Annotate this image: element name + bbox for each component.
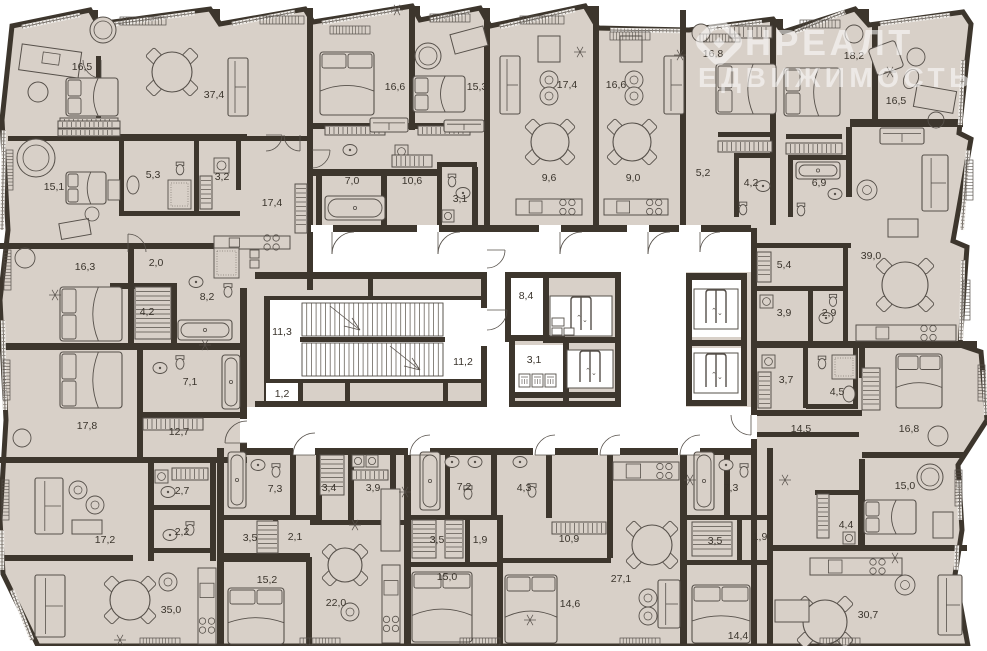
svg-text:5,4: 5,4 [777, 259, 792, 271]
svg-text:⌄: ⌄ [717, 374, 723, 381]
svg-text:4,3: 4,3 [517, 482, 532, 494]
svg-text:4,2: 4,2 [140, 306, 155, 318]
svg-text:39,0: 39,0 [861, 250, 882, 262]
svg-text:8,4: 8,4 [519, 290, 534, 302]
svg-text:7,2: 7,2 [457, 481, 472, 493]
svg-text:1,9: 1,9 [473, 534, 488, 546]
svg-text:9,6: 9,6 [542, 172, 557, 184]
svg-text:14,5: 14,5 [791, 423, 812, 435]
svg-text:2,9: 2,9 [822, 307, 837, 319]
svg-text:12,7: 12,7 [169, 426, 190, 438]
svg-text:7,1: 7,1 [183, 376, 198, 388]
svg-text:8,2: 8,2 [200, 291, 215, 303]
svg-text:37,4: 37,4 [204, 89, 225, 101]
svg-text:3,1: 3,1 [453, 193, 468, 205]
svg-text:⌄: ⌄ [582, 317, 588, 324]
svg-text:15,0: 15,0 [895, 480, 916, 492]
svg-text:15,0: 15,0 [437, 571, 458, 583]
svg-text:10,6: 10,6 [402, 175, 423, 187]
svg-text:2,1: 2,1 [288, 531, 303, 543]
svg-text:16,5: 16,5 [886, 95, 907, 107]
svg-text:17,2: 17,2 [95, 534, 116, 546]
svg-text:5,2: 5,2 [696, 167, 711, 179]
svg-text:⌄: ⌄ [591, 370, 597, 377]
svg-text:22,0: 22,0 [326, 597, 347, 609]
svg-text:4,2: 4,2 [744, 177, 759, 189]
svg-text:11,3: 11,3 [272, 326, 292, 338]
svg-text:2,0: 2,0 [149, 257, 164, 269]
svg-text:3,9: 3,9 [366, 482, 381, 494]
svg-text:14,6: 14,6 [560, 598, 581, 610]
svg-text:4,4: 4,4 [839, 519, 854, 531]
svg-text:3,5: 3,5 [243, 532, 258, 544]
svg-text:3,5: 3,5 [430, 534, 445, 546]
svg-text:9,0: 9,0 [626, 172, 641, 184]
svg-text:17,8: 17,8 [77, 420, 98, 432]
svg-text:7,3: 7,3 [724, 482, 739, 494]
svg-text:⌄: ⌄ [717, 310, 723, 317]
svg-text:27,1: 27,1 [611, 573, 632, 585]
svg-text:16,5: 16,5 [72, 61, 93, 73]
svg-text:16,6: 16,6 [385, 81, 406, 93]
svg-text:3,2: 3,2 [215, 171, 230, 183]
svg-text:16,3: 16,3 [75, 261, 96, 273]
svg-text:7,3: 7,3 [268, 483, 283, 495]
svg-text:4,5: 4,5 [830, 386, 845, 398]
svg-text:6,9: 6,9 [812, 177, 827, 189]
svg-text:1,9: 1,9 [753, 531, 768, 543]
svg-text:1,2: 1,2 [275, 388, 290, 400]
svg-text:15,3: 15,3 [467, 81, 488, 93]
svg-text:15,1: 15,1 [44, 181, 65, 193]
svg-text:30,7: 30,7 [858, 609, 879, 621]
svg-text:⌃: ⌃ [576, 314, 582, 322]
svg-text:3,4: 3,4 [322, 482, 337, 494]
svg-text:НРЕАЛТ: НРЕАЛТ [745, 22, 914, 63]
svg-text:14,4: 14,4 [728, 630, 749, 642]
svg-text:3,1: 3,1 [527, 354, 542, 366]
svg-text:35,0: 35,0 [161, 604, 182, 616]
svg-text:11,2: 11,2 [453, 356, 473, 368]
svg-text:2,2: 2,2 [175, 526, 190, 538]
svg-text:2,7: 2,7 [175, 485, 190, 497]
svg-text:ЕДВИЖИМОСТЬ: ЕДВИЖИМОСТЬ [698, 62, 974, 93]
svg-text:3,7: 3,7 [779, 374, 794, 386]
svg-text:16,6: 16,6 [606, 79, 627, 91]
svg-text:17,4: 17,4 [262, 197, 283, 209]
svg-text:⌃: ⌃ [585, 367, 591, 375]
svg-text:⌃: ⌃ [711, 307, 717, 315]
svg-text:16,8: 16,8 [899, 423, 920, 435]
svg-text:3,5: 3,5 [708, 535, 723, 547]
svg-text:10,9: 10,9 [559, 533, 580, 545]
svg-text:15,2: 15,2 [257, 574, 278, 586]
svg-text:5,3: 5,3 [146, 169, 161, 181]
svg-text:⌃: ⌃ [711, 371, 717, 379]
svg-text:7,0: 7,0 [345, 175, 360, 187]
svg-text:3,9: 3,9 [777, 307, 792, 319]
svg-text:17,4: 17,4 [557, 79, 578, 91]
